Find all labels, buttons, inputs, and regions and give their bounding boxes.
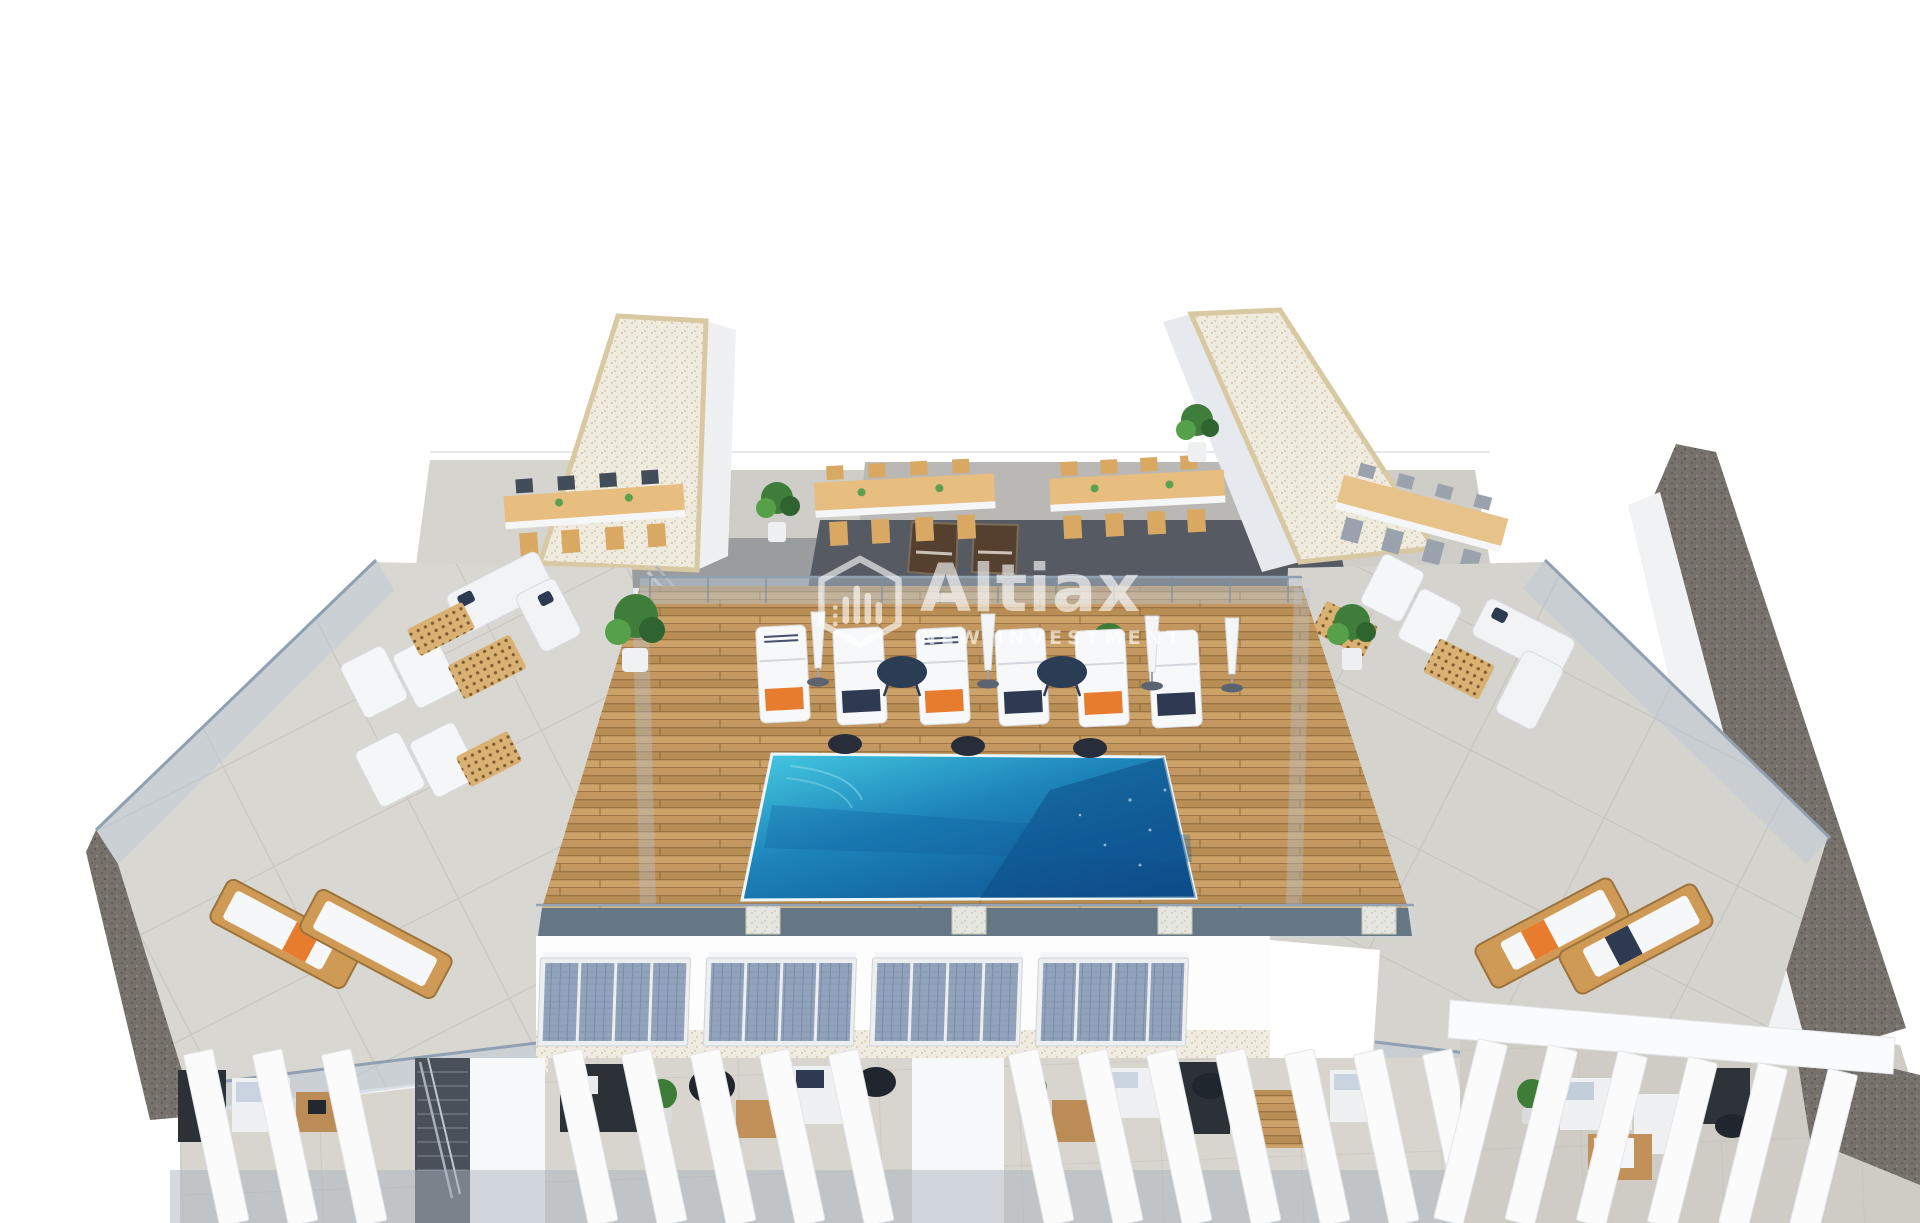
rooftop-render: [0, 0, 1920, 1223]
towel-orange: [765, 687, 804, 711]
towel-navy: [842, 689, 881, 713]
towel-orange: [1084, 691, 1123, 715]
corner-terrace-right: [1434, 1000, 1920, 1223]
sun-lounger-1: [756, 625, 811, 723]
solar-array-2: [703, 952, 856, 1046]
glass-balustrade-deck: [640, 576, 1302, 604]
door-right: [972, 524, 1018, 574]
solar-array-3: [869, 952, 1022, 1046]
swimming-pool: [742, 754, 1196, 900]
towel-navy: [1004, 690, 1043, 714]
towel-navy: [1157, 692, 1196, 716]
solar-array-1: [537, 952, 690, 1046]
solar-array-4: [1035, 952, 1188, 1046]
towel-orange: [925, 689, 964, 713]
deck-front-edge: [534, 905, 1416, 938]
rooftop-render-stage: Altiax NEW INVESTMENT: [0, 0, 1920, 1223]
